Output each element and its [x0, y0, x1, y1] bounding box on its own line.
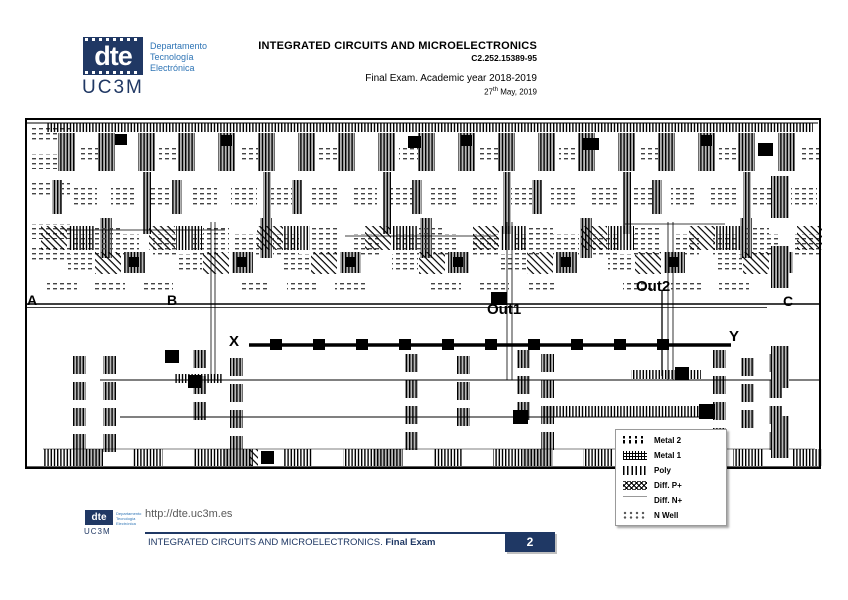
layout-shape — [319, 146, 339, 162]
footer-exam-label: Final Exam — [385, 537, 435, 548]
layout-shape — [711, 188, 737, 208]
layout-shape — [741, 384, 754, 402]
layout-shape — [115, 134, 127, 145]
layout-shape — [405, 380, 418, 398]
layout-shape — [221, 135, 232, 146]
layout-shape — [513, 410, 528, 424]
layout-shape — [95, 282, 125, 293]
label-out1: Out1 — [487, 302, 521, 317]
layout-shape — [419, 252, 445, 274]
dept-line: Electrónica — [150, 63, 207, 74]
dte-department-text: Departamento Tecnología Electrónica — [150, 41, 207, 74]
layout-shape — [498, 133, 515, 171]
legend-label: Metal 1 — [654, 451, 681, 460]
layout-shape — [193, 350, 206, 368]
layout-shape — [311, 252, 337, 274]
layout-shape — [652, 180, 662, 214]
legend-label: Diff. N+ — [654, 496, 682, 505]
layout-shape — [249, 449, 258, 466]
layout-shape — [689, 226, 715, 250]
layout-shape — [412, 180, 422, 214]
layout-shape — [405, 354, 418, 372]
layout-shape — [73, 356, 86, 374]
layout-shape — [523, 449, 553, 466]
layout-shape — [442, 339, 454, 350]
layout-shape — [527, 226, 553, 250]
footer-course-title: INTEGRATED CIRCUITS AND MICROELECTRONICS… — [148, 537, 385, 548]
layout-shape — [741, 358, 754, 376]
layout-shape — [230, 358, 243, 376]
layout-shape — [583, 449, 613, 466]
layout-shape — [159, 146, 179, 162]
layout-shape — [517, 376, 530, 394]
layout-shape — [408, 136, 421, 148]
layer-legend: Metal 2 Metal 1 Poly Diff. P+ Diff. N+ N… — [615, 429, 727, 526]
layout-shape — [635, 226, 661, 250]
layout-shape — [365, 226, 391, 250]
layout-shape — [257, 226, 283, 250]
layout-shape — [47, 282, 77, 293]
layout-shape — [479, 146, 499, 162]
layout-shape — [405, 432, 418, 450]
layout-shape — [335, 282, 365, 293]
layout-shape — [351, 188, 377, 208]
layout-shape — [457, 382, 470, 400]
course-title: INTEGRATED CIRCUITS AND MICROELECTRONICS — [217, 40, 537, 52]
layout-shape — [258, 133, 275, 171]
label-input-c: C — [783, 294, 793, 308]
layout-shape — [479, 282, 509, 293]
layout-shape — [298, 133, 315, 171]
page-number: 2 — [527, 535, 534, 549]
layout-shape — [345, 257, 355, 267]
slide-page: dte Departamento Tecnología Electrónica … — [0, 0, 848, 600]
layout-shape — [528, 339, 540, 350]
layout-shape — [658, 133, 675, 171]
layout-shape — [103, 382, 116, 400]
legend-label: Poly — [654, 466, 671, 475]
layout-shape — [392, 254, 418, 272]
layout-shape — [239, 282, 269, 293]
layout-shape — [111, 188, 137, 208]
layout-shape — [143, 172, 151, 234]
layout-shape — [378, 133, 395, 171]
layout-shape — [383, 172, 391, 234]
layout-shape — [58, 133, 75, 171]
layout-shape — [172, 180, 182, 214]
layout-shape — [500, 254, 526, 272]
layout-shape — [356, 339, 368, 350]
layout-shape — [614, 339, 626, 350]
layout-shape — [405, 406, 418, 424]
layout-shape — [591, 188, 617, 208]
layout-shape — [716, 254, 742, 272]
layout-shape — [639, 146, 659, 162]
layout-shape — [79, 146, 99, 162]
layout-shape — [419, 226, 445, 250]
layout-shape — [103, 356, 116, 374]
layout-shape — [284, 254, 310, 272]
layout-shape — [758, 143, 773, 156]
layout-shape — [313, 339, 325, 350]
layout-shape — [631, 370, 701, 379]
layout-shape — [701, 135, 712, 146]
layout-shape — [138, 133, 155, 171]
date-rest: May, 2019 — [498, 88, 537, 97]
layout-shape — [608, 254, 634, 272]
layout-shape — [292, 180, 302, 214]
layout-shape — [471, 188, 497, 208]
layout-shape — [30, 180, 70, 195]
layout-shape — [771, 246, 789, 288]
layout-shape — [176, 254, 202, 272]
legend-item-diffp: Diff. P+ — [623, 480, 723, 492]
layout-shape — [797, 226, 822, 250]
ic-layout-diagram — [25, 118, 822, 470]
dept-line: Electrónica — [116, 521, 141, 526]
layout-shape — [230, 384, 243, 402]
dept-line: Tecnología — [150, 52, 207, 63]
layout-shape — [671, 188, 697, 208]
legend-item-metal2: Metal 2 — [623, 434, 723, 446]
footer-dte-logo: dte — [85, 510, 113, 525]
layout-shape — [541, 354, 554, 372]
footer-course-line: INTEGRATED CIRCUITS AND MICROELECTRONICS… — [148, 537, 436, 548]
course-code: C2.252.15389-95 — [217, 53, 537, 63]
layout-shape — [399, 146, 419, 162]
layout-shape — [538, 133, 555, 171]
layout-shape — [541, 380, 554, 398]
layout-shape — [743, 226, 769, 250]
layout-shape — [527, 282, 557, 293]
layout-shape — [47, 123, 813, 132]
exam-date: 27th May, 2019 — [217, 87, 537, 97]
label-section-x: X — [229, 334, 239, 349]
layout-shape — [771, 176, 789, 218]
legend-label: N Well — [654, 511, 678, 520]
layout-shape — [716, 226, 742, 250]
date-day: 27 — [484, 88, 493, 97]
dept-line: Departamento — [150, 41, 207, 52]
layout-shape — [618, 133, 635, 171]
layout-shape — [791, 188, 817, 208]
metal2-swatch — [623, 436, 647, 445]
layout-shape — [532, 180, 542, 214]
layout-shape — [583, 138, 599, 150]
footer-dept-text: Departamento Tecnología Electrónica — [116, 511, 141, 526]
n-well-swatch — [623, 511, 647, 520]
layout-shape — [799, 146, 819, 162]
layout-shape — [188, 375, 201, 388]
layout-shape — [671, 282, 701, 293]
layout-shape — [771, 416, 789, 458]
layout-shape — [541, 432, 554, 450]
header-titles: INTEGRATED CIRCUITS AND MICROELECTRONICS… — [217, 40, 537, 97]
legend-item-nwell: N Well — [623, 510, 723, 522]
layout-shape — [431, 282, 461, 293]
diff-p-swatch — [623, 481, 647, 490]
layout-shape — [561, 257, 571, 267]
layout-shape — [41, 226, 67, 250]
layout-shape — [203, 252, 229, 274]
layout-shape — [543, 406, 703, 417]
diff-n-swatch — [623, 496, 647, 505]
layout-shape — [623, 172, 631, 234]
layout-shape — [517, 350, 530, 368]
layout-shape — [635, 252, 661, 274]
layout-shape — [43, 449, 73, 466]
layout-shape — [571, 339, 583, 350]
layout-shape — [95, 252, 121, 274]
layout-shape — [399, 339, 411, 350]
footer-uc3m-wordmark: UC3M — [84, 527, 111, 536]
layout-shape — [719, 282, 749, 293]
legend-label: Metal 2 — [654, 436, 681, 445]
legend-item-poly: Poly — [623, 464, 723, 476]
layout-shape — [493, 449, 523, 466]
layout-shape — [559, 146, 579, 162]
label-out2: Out2 — [636, 279, 670, 294]
layout-shape — [778, 133, 795, 171]
label-input-b: B — [167, 293, 177, 307]
layout-shape — [73, 449, 103, 466]
layout-shape — [738, 133, 755, 171]
layout-shape — [473, 226, 499, 250]
layout-shape — [73, 408, 86, 426]
footer-dte-acronym: dte — [92, 512, 107, 523]
layout-shape — [485, 339, 497, 350]
layout-shape — [431, 188, 457, 208]
poly-swatch — [623, 466, 647, 475]
legend-label: Diff. P+ — [654, 481, 682, 490]
layout-shape — [719, 146, 739, 162]
layout-shape — [675, 367, 689, 380]
layout-shape — [231, 188, 257, 208]
layout-shape — [392, 226, 418, 250]
layout-shape — [608, 226, 634, 250]
dte-url-link[interactable]: http://dte.uc3m.es — [145, 508, 232, 520]
layout-shape — [270, 339, 282, 350]
layout-shape — [68, 254, 94, 272]
layout-shape — [713, 350, 726, 368]
layout-shape — [178, 133, 195, 171]
layout-shape — [453, 257, 463, 267]
layout-shape — [733, 449, 763, 466]
uc3m-wordmark: UC3M — [82, 77, 144, 99]
layout-shape — [239, 146, 259, 162]
exam-subtitle: Final Exam. Academic year 2018-2019 — [217, 73, 537, 84]
layout-shape — [338, 133, 355, 171]
layout-shape — [237, 257, 247, 267]
layout-shape — [793, 449, 822, 466]
layout-shape — [191, 188, 217, 208]
layout-shape — [193, 449, 223, 466]
layout-shape — [699, 404, 715, 419]
layout-shape — [433, 449, 463, 466]
layout-shape — [551, 188, 577, 208]
layout-shape — [771, 346, 789, 388]
dte-logo: dte — [83, 37, 143, 75]
layout-shape — [230, 410, 243, 428]
layout-shape — [581, 226, 607, 250]
layout-shape — [343, 449, 373, 466]
layout-shape — [743, 172, 751, 234]
legend-item-metal1: Metal 1 — [623, 449, 723, 461]
layout-shape — [284, 226, 310, 250]
layout-shape — [261, 451, 274, 464]
layout-shape — [52, 180, 62, 214]
layout-shape — [30, 248, 70, 263]
layout-shape — [263, 172, 271, 234]
label-section-y: Y — [729, 329, 739, 344]
layout-shape — [73, 382, 86, 400]
layout-shape — [311, 188, 337, 208]
dte-logo-acronym: dte — [94, 43, 132, 70]
layout-shape — [457, 356, 470, 374]
layout-shape — [743, 252, 769, 274]
page-number-badge: 2 — [505, 532, 555, 552]
layout-shape — [287, 282, 317, 293]
layout-shape — [500, 226, 526, 250]
layout-shape — [741, 410, 754, 428]
layout-shape — [311, 226, 337, 250]
label-input-a: A — [27, 293, 37, 307]
layout-shape — [133, 449, 163, 466]
layout-shape — [373, 449, 403, 466]
layout-shape — [283, 449, 313, 466]
layout-shape — [165, 350, 179, 363]
footer-divider-line — [145, 532, 507, 534]
layout-shape — [223, 449, 253, 466]
layout-shape — [129, 257, 139, 267]
metal1-swatch — [623, 451, 647, 460]
layout-shape — [657, 339, 669, 350]
layout-shape — [71, 188, 97, 208]
legend-item-diffn: Diff. N+ — [623, 495, 723, 507]
layout-shape — [669, 257, 679, 267]
layout-shape — [461, 135, 472, 146]
layout-shape — [103, 408, 116, 426]
layout-shape — [527, 252, 553, 274]
layout-shape — [98, 133, 115, 171]
layout-shape — [713, 376, 726, 394]
